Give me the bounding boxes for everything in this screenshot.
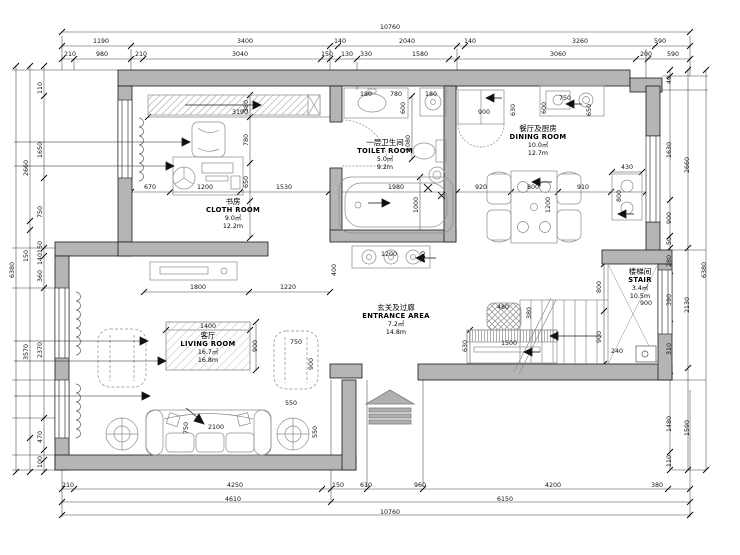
dimension-label: 310 — [667, 343, 674, 355]
dimension-label: 50 — [667, 237, 674, 245]
dimension-label: 650 — [587, 104, 594, 116]
dimension-lines — [12, 32, 708, 517]
room-perimeter: 14.8m — [362, 329, 429, 337]
dimension-label: 240 — [611, 349, 623, 356]
dimension-label: 750 — [184, 422, 191, 434]
dimension-label: 280 — [667, 255, 674, 267]
tv-cabinet — [150, 262, 237, 280]
room-name-en: LIVING ROOM — [180, 340, 235, 349]
small-basin — [429, 167, 445, 183]
dimension-label: 6380 — [10, 262, 17, 278]
dimension-label: 380 — [244, 100, 251, 112]
room-name-en: DINING ROOM — [510, 133, 567, 142]
room-perimeter: 12.7m — [510, 150, 567, 158]
dimension-label: 6380 — [702, 262, 709, 278]
dimension-label: 800 — [597, 281, 604, 293]
room-name-en: TOILET ROOM — [357, 147, 413, 156]
room-perimeter: 10.5m — [628, 293, 652, 301]
wall-corridor-bottom-left — [330, 364, 362, 378]
dimension-label: 4610 — [225, 497, 241, 504]
room-label-dining: 餐厅及厨房DINING ROOM10.0㎡12.7m — [510, 124, 567, 158]
room-label-entrance: 玄关及过廊ENTRANCE AREA7.2㎡14.8m — [362, 303, 429, 337]
dimension-label: 920 — [475, 185, 487, 192]
dimension-label: 600 — [401, 102, 408, 114]
dimension-label: 1400 — [200, 324, 216, 331]
dimension-label: 100 — [38, 456, 45, 468]
wall-right-dining-top — [646, 86, 660, 136]
dimension-label: 480 — [497, 305, 509, 312]
wall-toilet-bottom — [330, 230, 456, 242]
dimension-label: 1200 — [546, 197, 553, 213]
room-label-toilet: 一层卫生间TOILET ROOM5.0㎡9.2m — [357, 138, 413, 172]
dimension-label: 800 — [617, 190, 624, 202]
window-living-left-2 — [55, 380, 69, 438]
room-name-en: CLOTH ROOM — [206, 206, 260, 215]
dimension-label: 1590 — [685, 420, 692, 436]
wall-study-toilet-lower — [330, 168, 342, 240]
entry-steps-icon — [366, 390, 414, 424]
radiator-study — [139, 118, 144, 181]
dimension-label: 1530 — [276, 185, 292, 192]
dimension-label: 3060 — [550, 52, 566, 59]
wall-stair-top — [602, 250, 672, 264]
dimension-label: 1650 — [38, 142, 45, 158]
toilet-wc — [413, 140, 446, 162]
dimension-label: 360 — [38, 270, 45, 282]
room-name-en: STAIR — [628, 276, 652, 285]
room-name-cn: 餐厅及厨房 — [510, 124, 567, 133]
dimension-label: 900 — [597, 331, 604, 343]
dimension-label: 590 — [654, 39, 666, 46]
dimension-label: 910 — [577, 185, 589, 192]
side-table-left — [106, 418, 138, 450]
side-table-right — [277, 418, 309, 450]
room-name-cn: 楼梯间 — [628, 267, 652, 276]
room-perimeter: 16.8m — [180, 357, 235, 365]
dimension-label: 10760 — [380, 25, 400, 32]
dimension-label: 900 — [309, 358, 316, 370]
dimension-label: 980 — [96, 52, 108, 59]
dimension-label: 3570 — [24, 344, 31, 360]
dimension-label: 550 — [285, 401, 297, 408]
dimension-label: 1500 — [501, 341, 517, 348]
dimension-label: 4200 — [545, 483, 561, 490]
fridge-cabinet — [458, 90, 504, 147]
dimension-label: 150 — [38, 241, 45, 253]
dimension-label: 900 — [667, 212, 674, 224]
dimension-label: 10760 — [380, 510, 400, 517]
dimension-label: 1200 — [381, 252, 397, 259]
dimension-label: 380 — [651, 483, 663, 490]
dimension-ticks — [13, 29, 709, 518]
dimension-label: 960 — [414, 483, 426, 490]
dimension-label: 1190 — [93, 39, 109, 46]
dimension-label: 180 — [360, 92, 372, 99]
dimension-label: 210 — [135, 52, 147, 59]
dimension-label: 900 — [640, 301, 652, 308]
dimension-label: 1800 — [190, 285, 206, 292]
dimension-label: 110 — [667, 455, 674, 467]
dimension-label: 200 — [640, 52, 652, 59]
room-name-en: ENTRANCE AREA — [362, 312, 429, 321]
dimension-label: 1580 — [412, 52, 428, 59]
dimension-label: 1630 — [667, 142, 674, 158]
room-label-study: 书房CLOTH ROOM9.0㎡12.2m — [206, 197, 260, 231]
dimension-label: 2040 — [399, 39, 415, 46]
dimension-label: 900 — [253, 340, 260, 352]
dimension-label: 780 — [390, 92, 402, 99]
wall-top — [118, 70, 630, 86]
room-area: 10.0㎡ — [510, 142, 567, 150]
dimension-label: 1980 — [388, 185, 404, 192]
wall-corridor-bottom-right — [418, 364, 672, 380]
dimension-label: 130 — [341, 52, 353, 59]
dimension-label: 150 — [321, 52, 333, 59]
room-perimeter: 9.2m — [357, 164, 413, 172]
room-area: 5.0㎡ — [357, 156, 413, 164]
dimension-label: 3400 — [237, 39, 253, 46]
room-label-living: 客厅LIVING ROOM16.7㎡16.8m — [180, 331, 235, 365]
dimension-label: 180 — [425, 92, 437, 99]
dimension-label: 3260 — [572, 39, 588, 46]
room-label-stair: 楼梯间STAIR3.4㎡10.5m — [628, 267, 652, 301]
wall-mid-connector — [342, 380, 356, 470]
wall-study-toilet-upper — [330, 86, 342, 122]
room-area: 3.4㎡ — [628, 285, 652, 293]
dimension-label: 470 — [38, 431, 45, 443]
dimension-label: 590 — [667, 52, 679, 59]
dimension-label: 600 — [542, 102, 549, 114]
dimension-label: 310 — [421, 251, 428, 263]
dimension-label: 6150 — [497, 497, 513, 504]
room-name-cn: 书房 — [206, 197, 260, 206]
dimension-label: 140 — [38, 253, 45, 265]
dimension-label: 390 — [667, 294, 674, 306]
dimension-label: 150 — [332, 483, 344, 490]
dimension-label: 670 — [144, 185, 156, 192]
dimension-label: 140 — [464, 39, 476, 46]
wall-bottom-living — [55, 455, 356, 470]
dimension-label: 400 — [332, 264, 339, 276]
dimension-label: 1480 — [667, 416, 674, 432]
dimension-label: 4250 — [227, 483, 243, 490]
floor-plan: 1076011903400140204014032605902109802103… — [0, 0, 740, 555]
dimension-label: 110 — [38, 82, 45, 94]
walls — [55, 70, 672, 470]
dimension-label: 1220 — [280, 285, 296, 292]
dimension-label: 750 — [559, 96, 571, 103]
window-living-left-1 — [55, 288, 69, 358]
lounge-chair — [192, 122, 225, 157]
dimension-label: 800 — [527, 185, 539, 192]
dimension-label: 210 — [62, 483, 74, 490]
dimension-label: 550 — [313, 426, 320, 438]
dimension-label: 430 — [621, 165, 633, 172]
dimension-label: 380 — [527, 307, 534, 319]
dimension-label: 330 — [360, 52, 372, 59]
dimension-label: 750 — [38, 206, 45, 218]
room-perimeter: 12.2m — [206, 223, 260, 231]
dimension-label: 2130 — [685, 297, 692, 313]
dimension-label: 630 — [463, 340, 470, 352]
dimension-label: 1200 — [197, 185, 213, 192]
radiator-living-2 — [76, 384, 81, 438]
sofa — [146, 410, 271, 455]
room-area: 9.0㎡ — [206, 215, 260, 223]
dimension-label: 2370 — [38, 342, 45, 358]
dimension-label: 140 — [334, 39, 346, 46]
dimension-label: 210 — [64, 52, 76, 59]
dimension-label: 750 — [290, 340, 302, 347]
dimension-label: 3040 — [232, 52, 248, 59]
room-name-cn: 客厅 — [180, 331, 235, 340]
dimension-label: 650 — [244, 176, 251, 188]
dimension-label: 2100 — [208, 425, 224, 432]
radiator-living-1 — [76, 292, 81, 355]
armchair-left — [98, 329, 146, 387]
dimension-label: 40 — [667, 76, 674, 84]
room-area: 16.7㎡ — [180, 349, 235, 357]
dimension-label: 610 — [360, 483, 372, 490]
dimension-label: 780 — [244, 134, 251, 146]
dimension-label: 900 — [478, 110, 490, 117]
room-area: 7.2㎡ — [362, 321, 429, 329]
room-name-cn: 玄关及过廊 — [362, 303, 429, 312]
dimension-label: 2660 — [24, 160, 31, 176]
room-name-cn: 一层卫生间 — [357, 138, 413, 147]
dimension-label: 1000 — [414, 197, 421, 213]
dimension-label: 2660 — [685, 157, 692, 173]
dimension-label: 150 — [24, 250, 31, 262]
dimension-label: 630 — [511, 104, 518, 116]
window-dining-right — [646, 136, 660, 222]
window-study-left — [118, 100, 132, 178]
wall-study-bottom — [118, 242, 268, 256]
